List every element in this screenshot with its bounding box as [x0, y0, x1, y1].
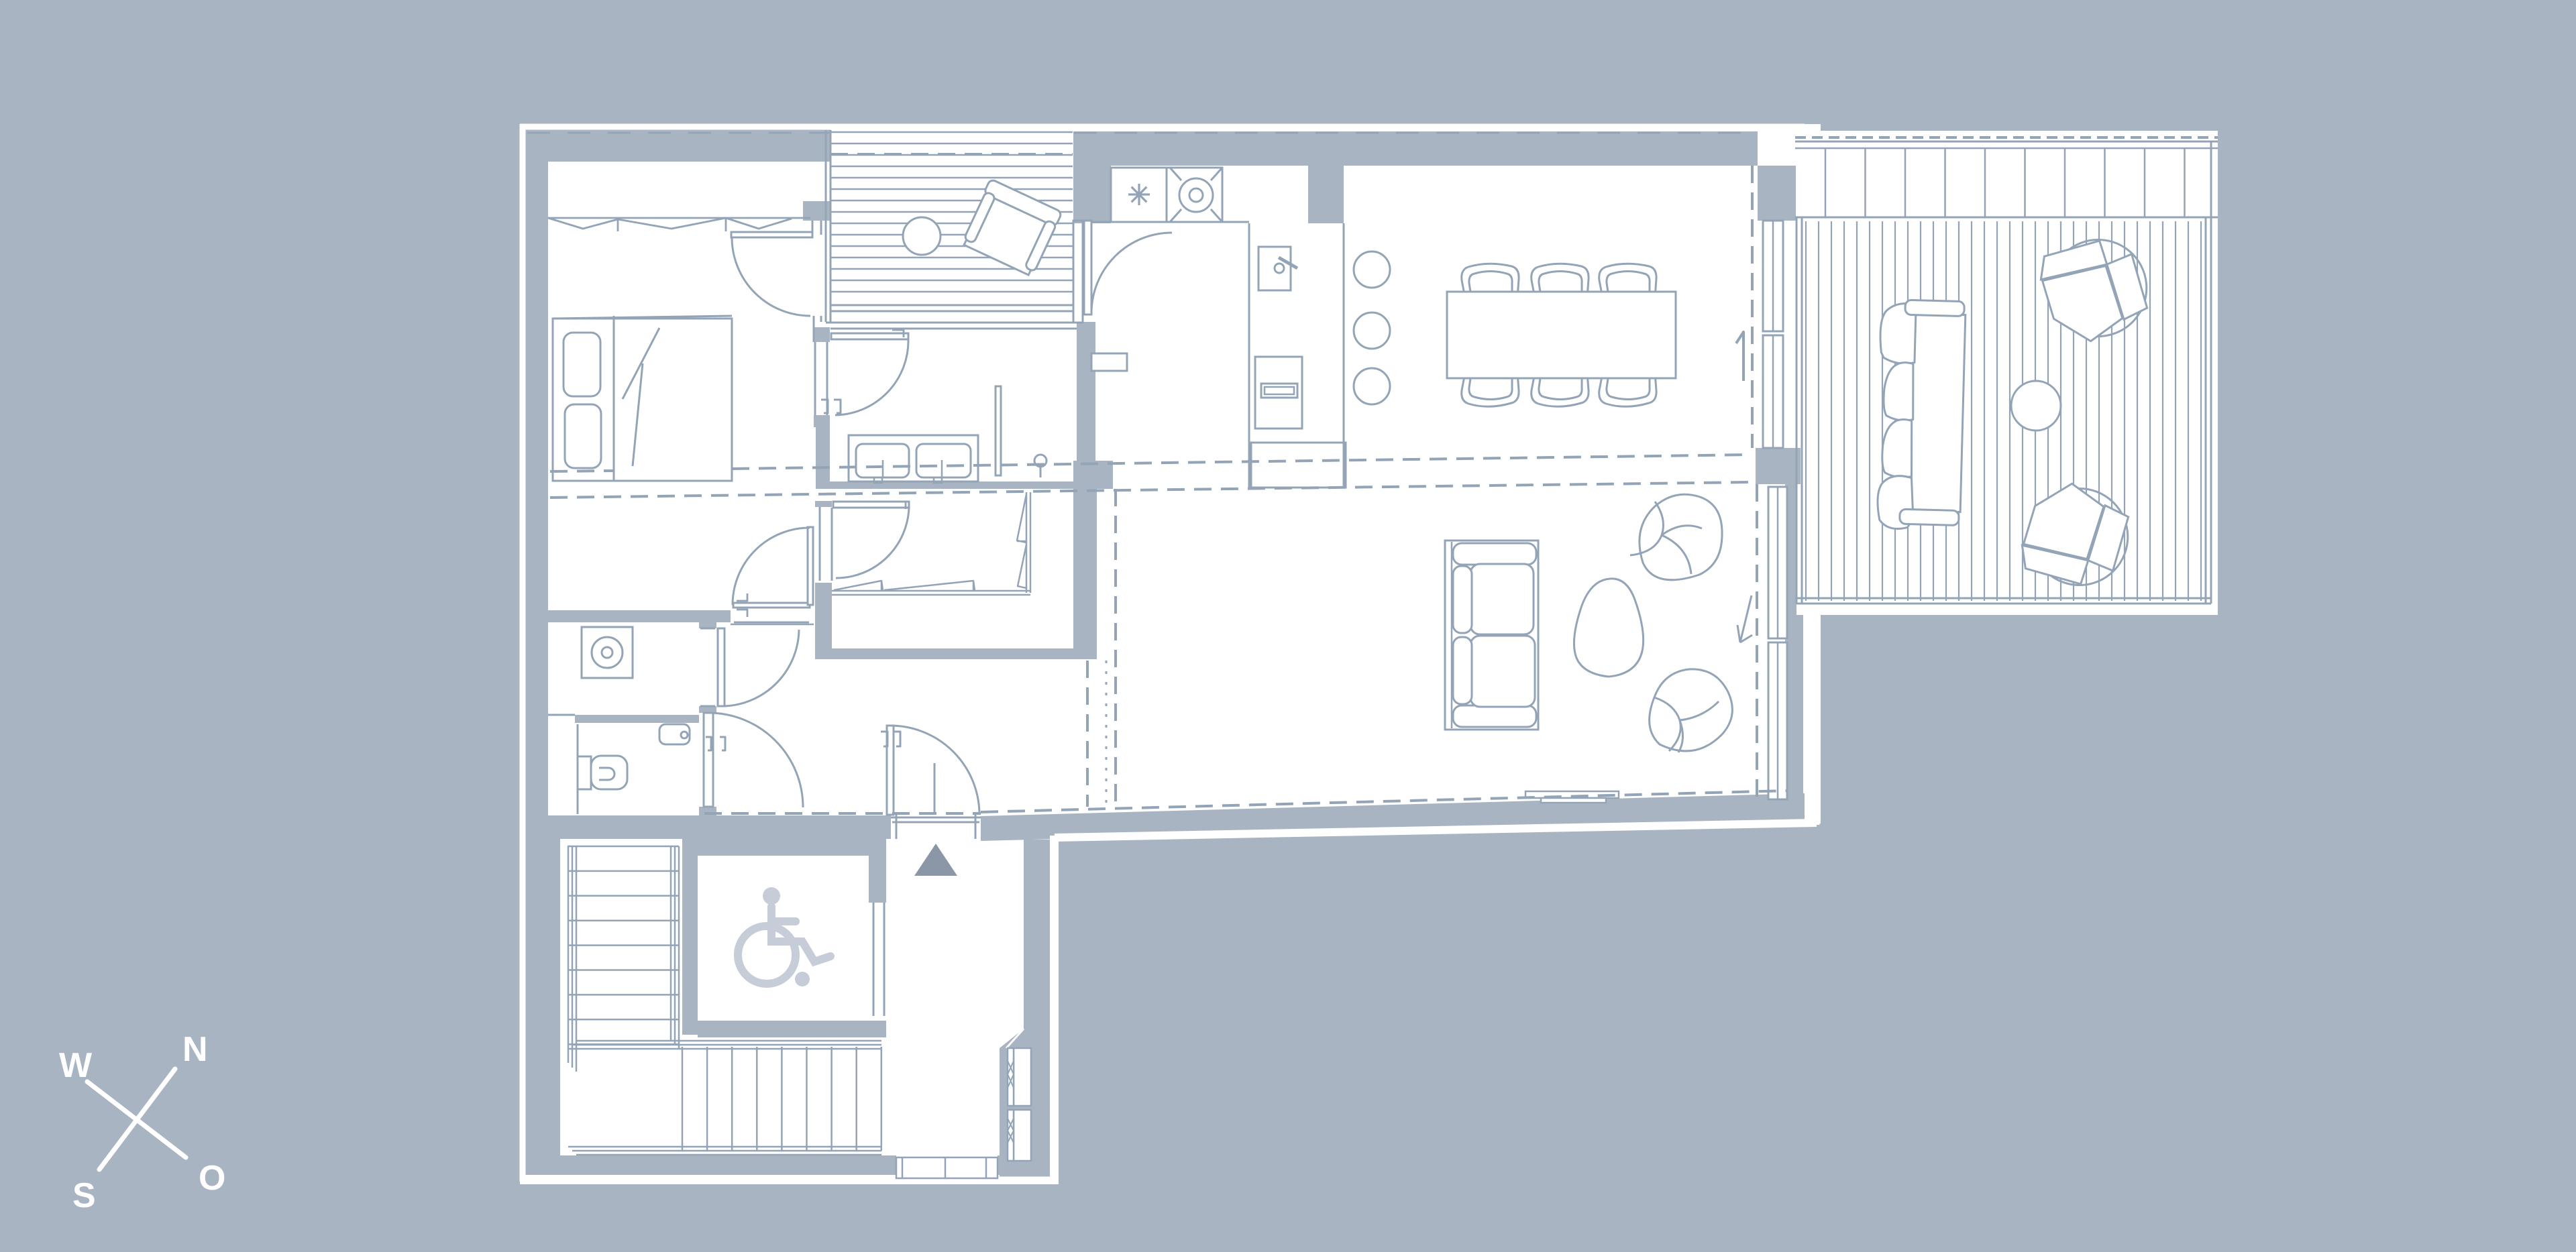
svg-text:W: W [59, 1046, 93, 1085]
svg-text:S: S [72, 1176, 96, 1215]
svg-text:O: O [199, 1159, 225, 1198]
svg-text:N: N [182, 1030, 208, 1069]
